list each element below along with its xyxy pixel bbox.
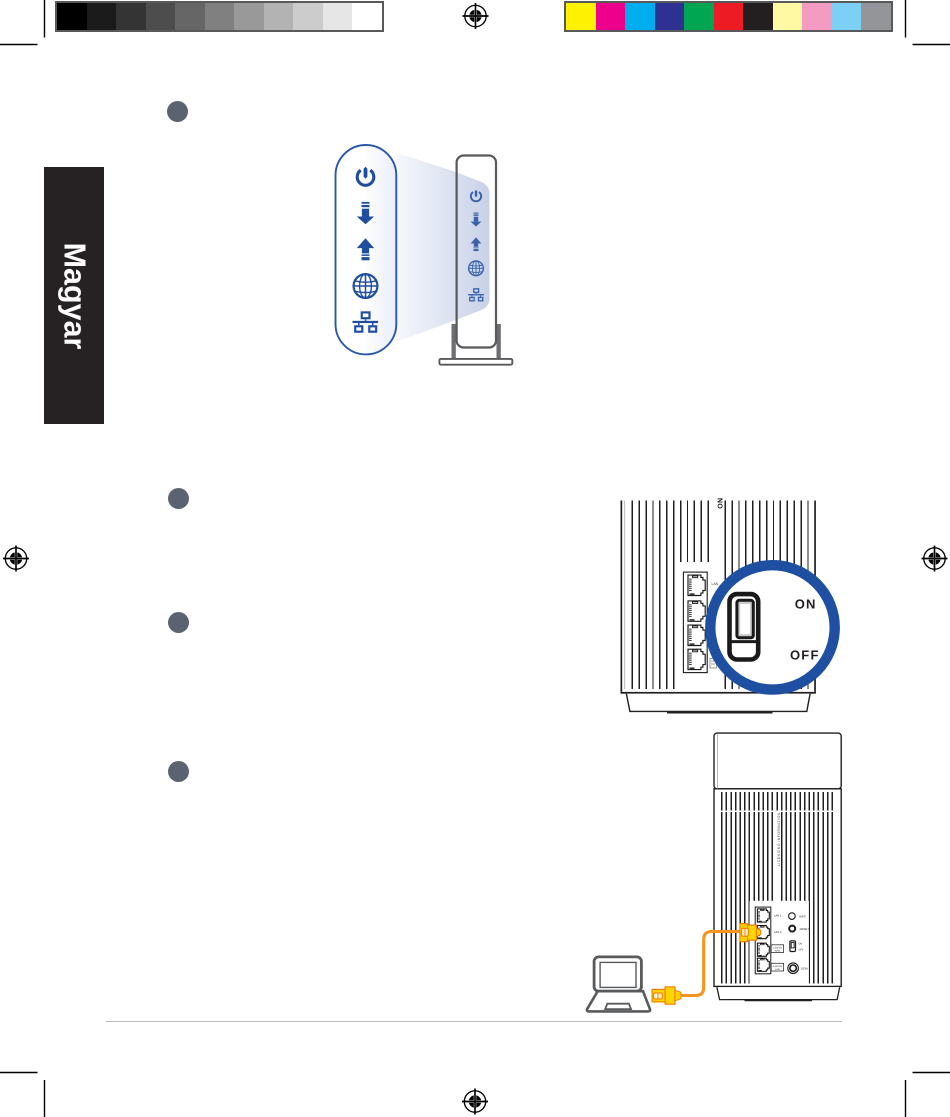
svg-text:LAN: LAN [712,582,719,586]
svg-text:OFF: OFF [799,949,804,952]
svg-text:LICENSING INFORMATION: LICENSING INFORMATION [777,812,781,866]
svg-text:RESET: RESET [800,927,810,931]
svg-text:DCIN: DCIN [801,966,808,970]
svg-text:OFF: OFF [790,647,820,662]
svg-text:LAN 2: LAN 2 [774,930,782,934]
svg-text:ON: ON [795,596,817,611]
svg-text:WPS: WPS [799,914,806,918]
svg-text:ON: ON [799,943,803,946]
svg-text:WAN: WAN [775,949,781,952]
svg-text:LAN 1: LAN 1 [774,914,782,918]
svg-text:ON: ON [717,497,724,508]
svg-text:LAN: LAN [775,968,780,971]
